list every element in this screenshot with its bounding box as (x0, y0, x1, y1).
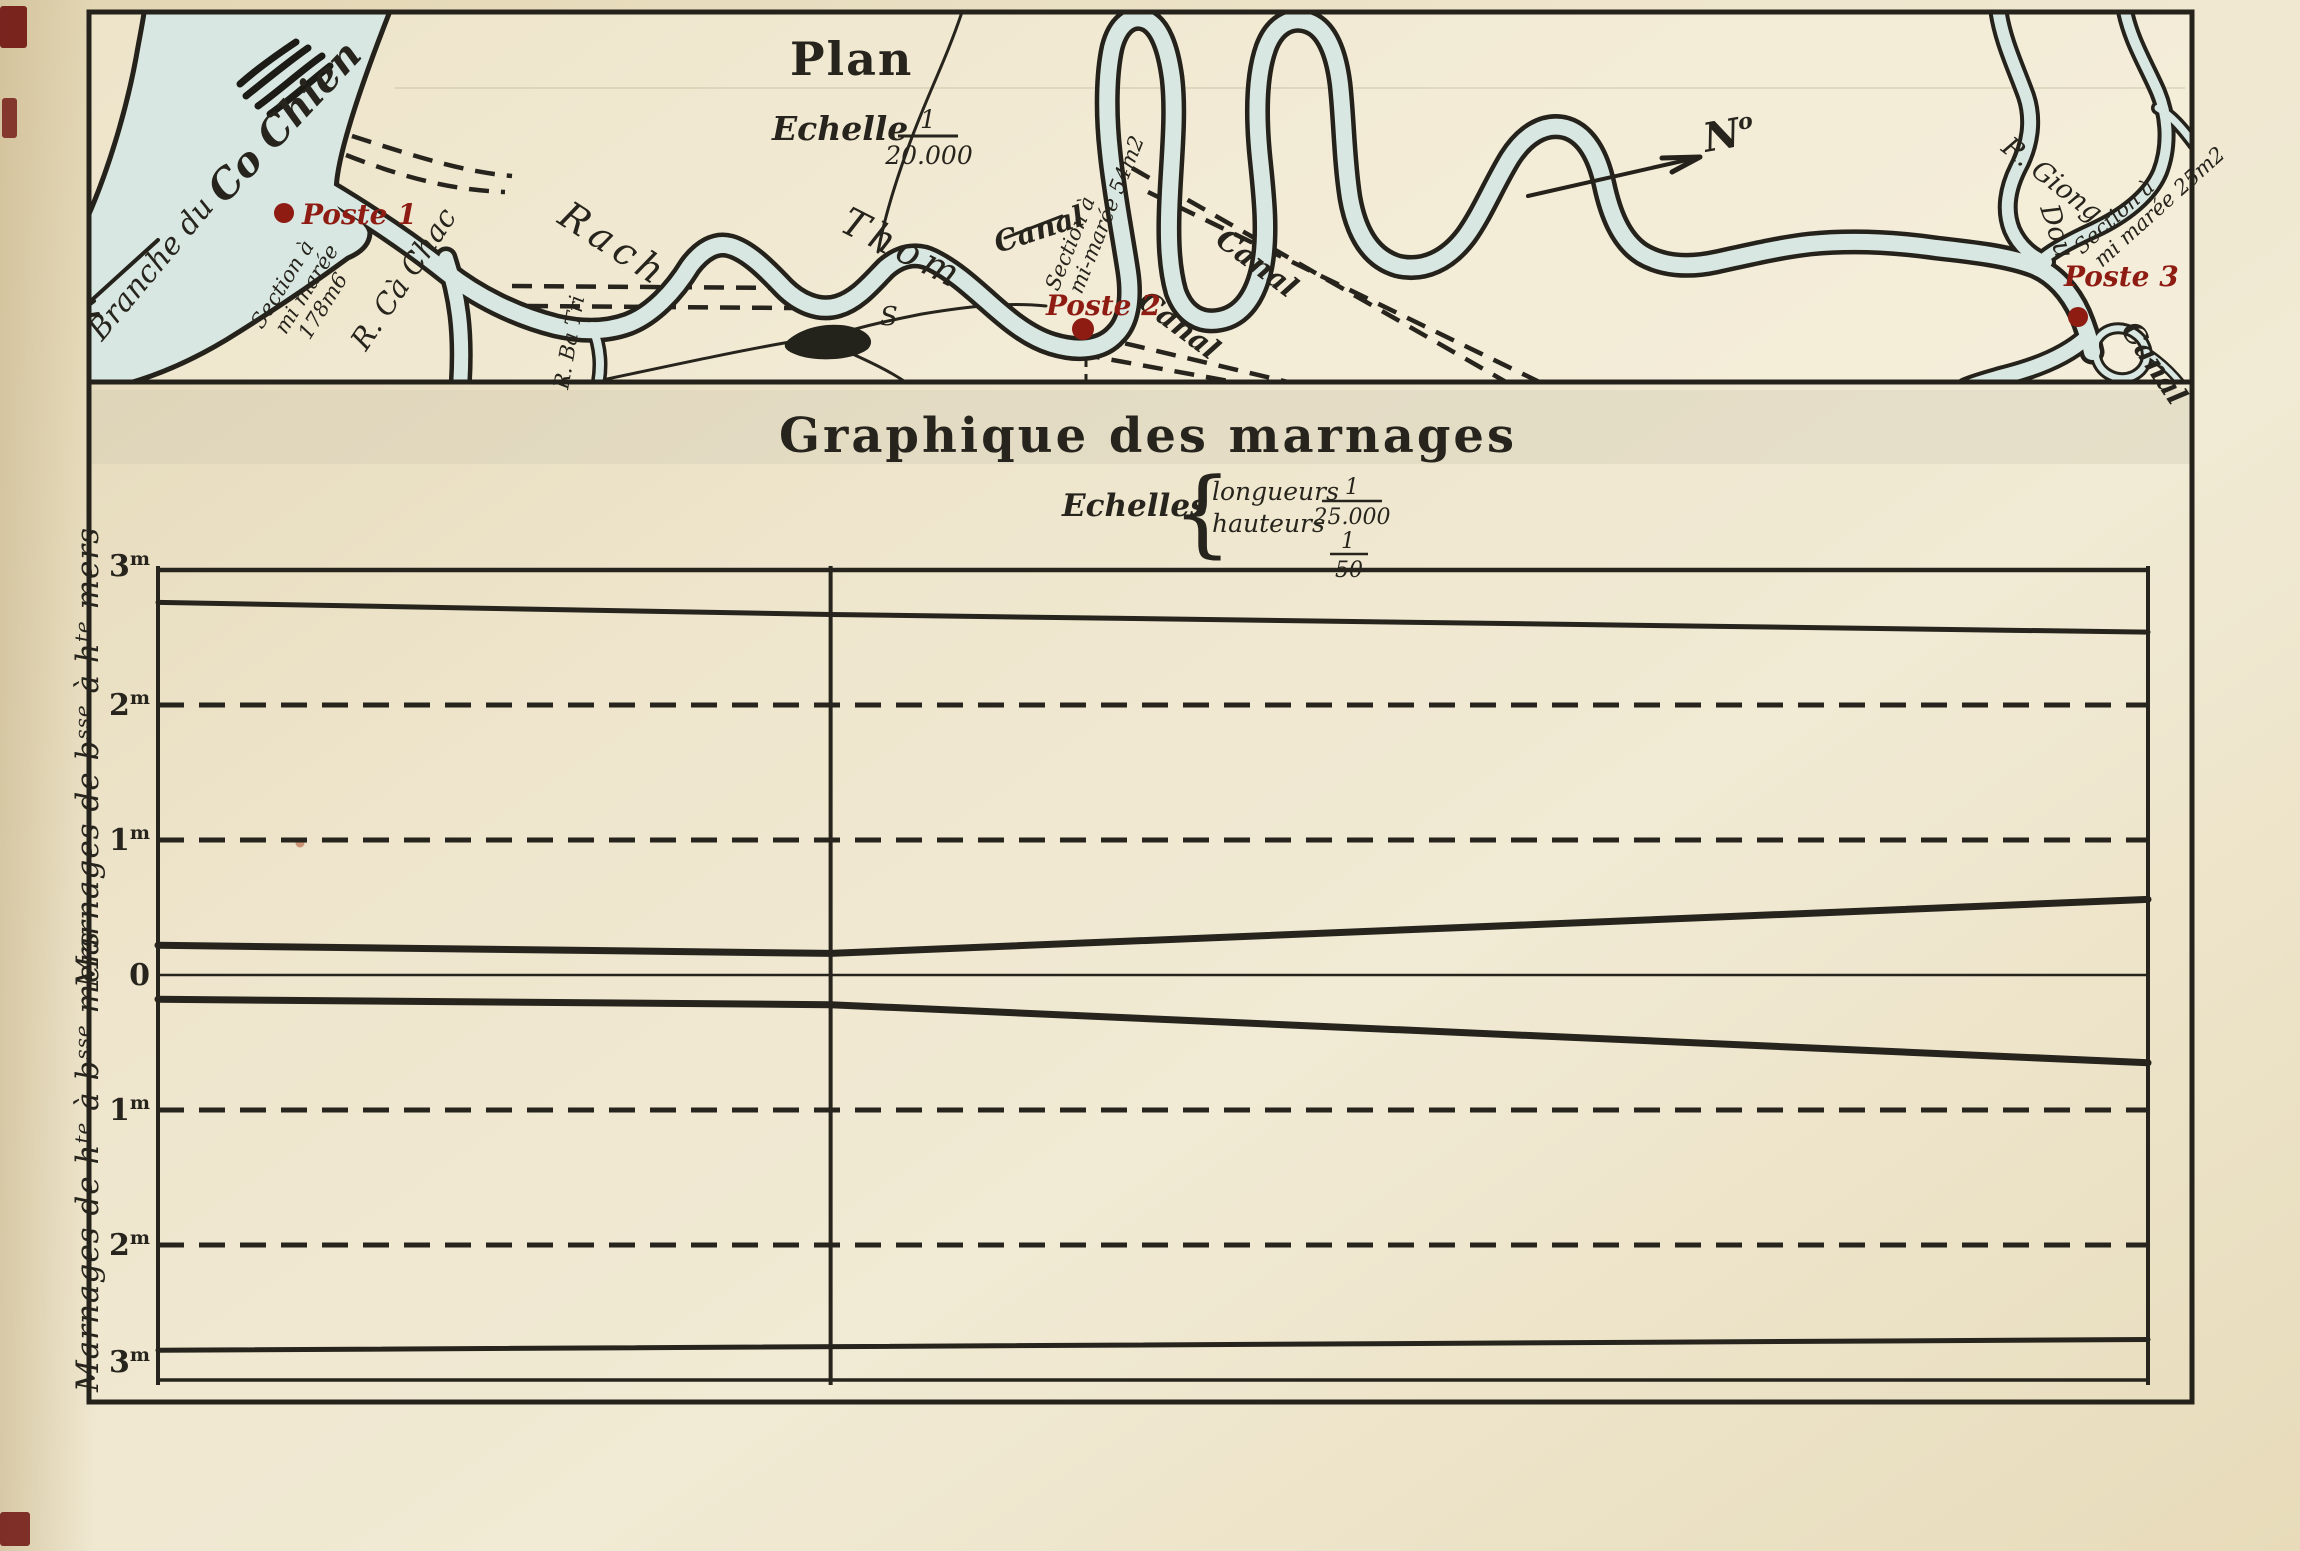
scale-longueurs-den: 25.000 (1313, 505, 1391, 530)
poste-3-dot (2068, 307, 2088, 327)
scale-longueurs-num: 1 (1345, 475, 1359, 500)
axis-label-lower-panel: Marnages de hte à bsse mers (70, 931, 106, 1393)
scale-hauteurs-label: hauteurs (1212, 509, 1325, 538)
island-label-s: S (880, 302, 898, 332)
chart-title: Graphique des marnages (779, 408, 1517, 464)
map-title: Plan (790, 32, 913, 86)
map-scale-numerator: 1 (920, 105, 936, 134)
map-scale-denominator: 20.000 (884, 141, 973, 170)
poste-1-label: Poste 1 (301, 198, 417, 231)
scale-hauteurs-num: 1 (1341, 529, 1355, 554)
scale-longueurs-label: longueurs (1212, 477, 1339, 506)
poste-1-dot (274, 203, 294, 223)
plate-canvas: Plan Echelle 1 20.000 Branche du Co Chie… (0, 0, 2300, 1551)
scanned-plate-page: Plan Echelle 1 20.000 Branche du Co Chie… (0, 0, 2300, 1551)
poste-3-label: Poste 3 (2063, 260, 2179, 293)
axis-label-upper-panel: Marnages de bsse à hte mers (70, 527, 106, 989)
tick-0: 0 (129, 958, 150, 993)
